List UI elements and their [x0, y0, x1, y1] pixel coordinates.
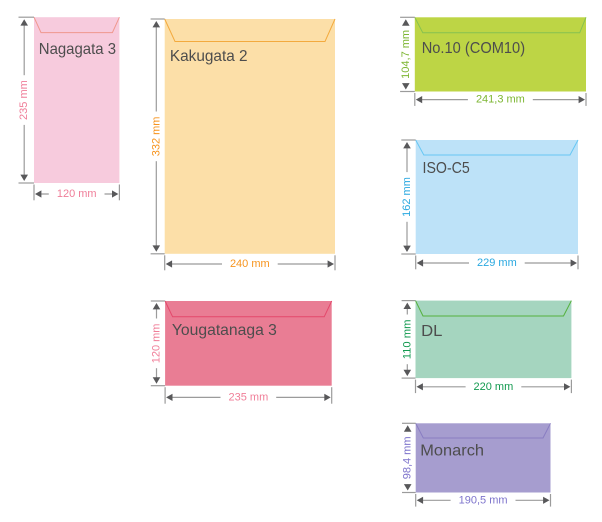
svg-text:120 mm: 120 mm: [57, 188, 97, 200]
svg-text:220 mm: 220 mm: [474, 381, 514, 393]
svg-text:No.10 (COM10): No.10 (COM10): [422, 40, 525, 57]
svg-text:Nagagata 3: Nagagata 3: [39, 41, 116, 58]
svg-text:ISO-C5: ISO-C5: [423, 160, 470, 177]
svg-text:DL: DL: [421, 323, 442, 340]
svg-text:332 mm: 332 mm: [150, 117, 162, 157]
svg-text:Kakugata 2: Kakugata 2: [170, 48, 248, 65]
svg-text:190,5 mm: 190,5 mm: [459, 494, 508, 506]
svg-text:104,7 mm: 104,7 mm: [400, 30, 412, 79]
svg-text:229 mm: 229 mm: [477, 257, 517, 269]
svg-text:Monarch: Monarch: [420, 443, 484, 460]
svg-text:Yougatanaga 3: Yougatanaga 3: [172, 322, 277, 339]
svg-text:240 mm: 240 mm: [230, 258, 270, 270]
svg-text:98,4 mm: 98,4 mm: [402, 437, 414, 480]
svg-text:120 mm: 120 mm: [151, 324, 163, 364]
svg-text:235 mm: 235 mm: [18, 80, 30, 120]
svg-text:110 mm: 110 mm: [401, 320, 413, 360]
svg-text:235 mm: 235 mm: [229, 391, 269, 403]
svg-text:162 mm: 162 mm: [401, 177, 413, 217]
svg-text:241,3 mm: 241,3 mm: [476, 94, 525, 106]
